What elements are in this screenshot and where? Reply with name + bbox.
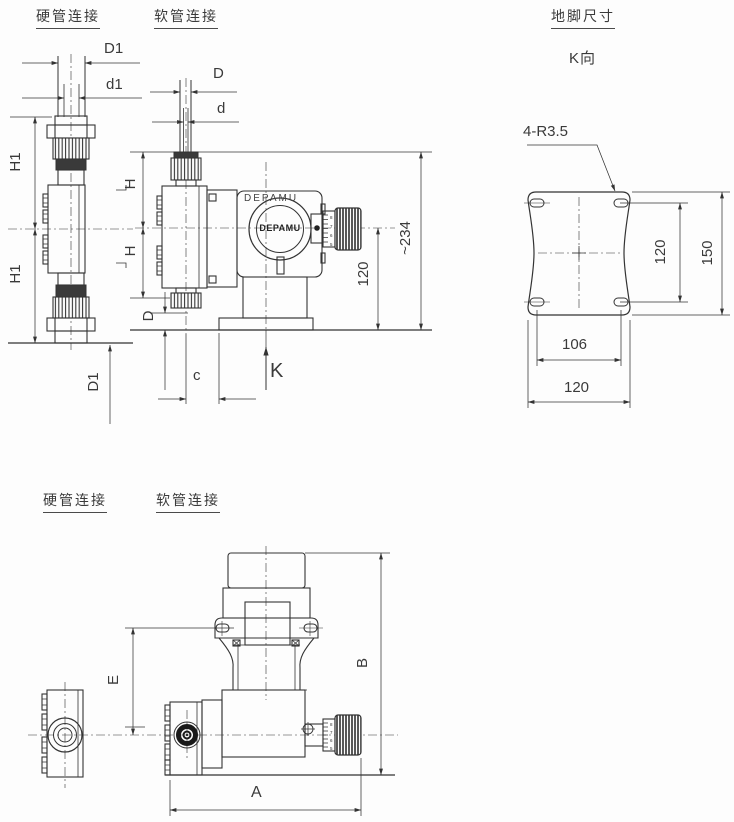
dim-label-d: d — [217, 100, 225, 117]
k-view-label: K — [270, 360, 283, 383]
motor-flange — [223, 588, 310, 618]
stroke-knob-side[interactable] — [335, 208, 361, 250]
dim-label-H-lower: H — [123, 229, 139, 273]
dim-label-B: B — [355, 641, 371, 685]
stroke-scale-side — [323, 211, 335, 247]
knurl-top — [53, 138, 89, 159]
dim-label-D1: D1 — [104, 40, 123, 57]
port-front-center — [186, 734, 188, 736]
dim-label-total-height: ~234 — [398, 216, 414, 260]
scale-digit: 5 — [330, 746, 333, 751]
pipe-outer-lines — [58, 56, 85, 117]
brand-text-body: DEPAMU — [244, 193, 298, 204]
pipe-inner-lines — [64, 84, 79, 117]
dim-label-120-side: 120 — [356, 252, 372, 296]
bottom-view-dimensions — [125, 553, 390, 816]
hose-outer-lines — [180, 80, 191, 152]
dim-label-D-bottom: D — [141, 294, 157, 338]
dim-label-H1-lower: H1 — [8, 252, 24, 296]
knob-scale-digits: 8 7 6 5 8 7 6 5 — [330, 215, 333, 751]
a-extensions — [170, 758, 361, 816]
dim-label-H-upper: H — [123, 162, 139, 206]
knurl-bottom — [53, 297, 89, 318]
view-title-hard-pipe-bottom: 硬管连接 — [43, 490, 107, 513]
dark-band-top — [56, 159, 86, 170]
slot-note-label: 4-R3.5 — [523, 123, 568, 140]
stroke-knob-front[interactable] — [335, 715, 361, 755]
k-direction-label: K向 — [569, 47, 596, 68]
middle-view-dimensions — [130, 92, 432, 404]
pedestal-side — [243, 277, 307, 318]
scale-digit: 8 — [330, 722, 333, 727]
dim-label-D: D — [213, 65, 224, 82]
lock-dot — [314, 225, 320, 231]
dim-label-A: A — [251, 784, 262, 802]
dark-band-bottom — [56, 285, 86, 297]
dim-label-found-120v: 120 — [653, 230, 669, 274]
dim-label-found-150: 150 — [700, 231, 716, 275]
brand-text-dial: DEPAMU — [253, 223, 307, 233]
dim-label-c: c — [193, 367, 201, 384]
left-valve-view — [8, 54, 133, 350]
dim-label-d1: d1 — [106, 76, 123, 93]
pump-body-front — [222, 690, 305, 757]
dim-label-D1-bottom: D1 — [86, 360, 102, 404]
foundation-dimensions — [527, 145, 730, 408]
waist-left — [219, 638, 233, 690]
view-title-soft-pipe-bottom: 软管连接 — [156, 490, 220, 513]
hose-nut-band-top — [174, 152, 198, 158]
pump-head-side — [207, 190, 237, 287]
suction-valve-body — [157, 186, 207, 288]
scale-digit: 6 — [330, 738, 333, 743]
dim-label-found-106: 106 — [562, 336, 587, 353]
hose-nut-knurl-bottom — [171, 293, 201, 308]
foundation-view — [524, 145, 730, 408]
scale-digit: 6 — [330, 233, 333, 238]
side-pump-view — [130, 78, 432, 334]
dim-label-found-120h: 120 — [564, 379, 589, 396]
motor-block — [228, 553, 305, 588]
waist-right — [300, 638, 314, 690]
scale-digit: 7 — [330, 730, 333, 735]
view-title-foundation: 地脚尺寸 — [551, 6, 615, 29]
c-extensions — [186, 333, 219, 404]
hose-nut-knurl-top — [171, 158, 201, 180]
scale-digit: 5 — [330, 242, 333, 247]
scale-digit: 7 — [330, 224, 333, 229]
dim-label-E: E — [106, 658, 122, 702]
view-title-soft-pipe-top: 软管连接 — [154, 6, 218, 29]
drawing-canvas: 8 7 6 5 8 7 6 5 硬管连接 软管连接 地脚尺寸 K向 D1 d1 … — [0, 0, 734, 822]
head-adapter — [202, 700, 222, 768]
mounting-slots — [524, 199, 628, 306]
scale-digit: 8 — [330, 215, 333, 220]
view-title-hard-pipe-top: 硬管连接 — [36, 6, 100, 29]
slot-leader — [527, 145, 615, 191]
dim-label-H1-upper: H1 — [8, 140, 24, 184]
